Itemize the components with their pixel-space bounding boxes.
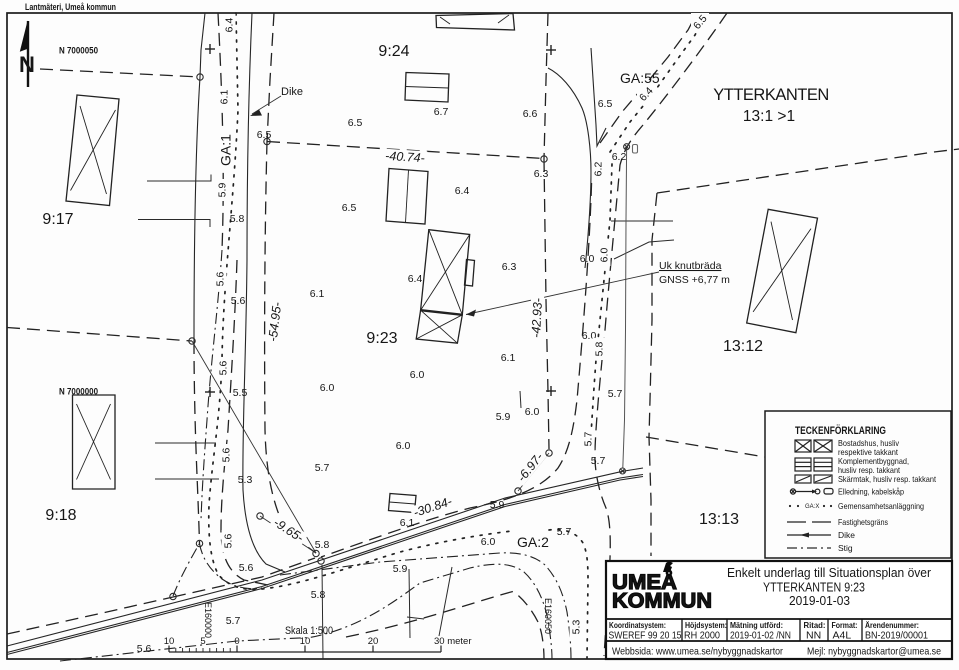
svg-text:5.7: 5.7 (608, 388, 623, 400)
svg-text:9:17: 9:17 (42, 211, 73, 228)
svg-text:6.5: 6.5 (348, 117, 363, 129)
svg-text:E160050: E160050 (543, 598, 553, 634)
svg-text:5.6: 5.6 (231, 295, 246, 307)
svg-text:6.0: 6.0 (410, 369, 425, 381)
svg-text:5.6: 5.6 (215, 272, 227, 287)
svg-text:6.4: 6.4 (455, 185, 470, 197)
svg-text:20: 20 (368, 636, 379, 647)
svg-text:5.8: 5.8 (594, 342, 606, 357)
svg-text:Webbsida: www.umea.se/nybyggna: Webbsida: www.umea.se/nybyggnadskartor (612, 646, 783, 658)
svg-text:Fastighetsgräns: Fastighetsgräns (838, 517, 888, 527)
svg-text:5.7: 5.7 (315, 462, 330, 474)
svg-text:6.4: 6.4 (408, 273, 423, 285)
svg-text:KOMMUN: KOMMUN (612, 589, 712, 613)
svg-text:Uk knutbräda: Uk knutbräda (659, 260, 722, 272)
svg-text:2019-01-02 /NN: 2019-01-02 /NN (730, 630, 791, 642)
svg-text:5.8: 5.8 (311, 589, 326, 601)
svg-text:5.7: 5.7 (226, 615, 241, 627)
svg-text:Stig: Stig (838, 543, 853, 553)
svg-text:Mejl: nybyggnadskartor@umea.se: Mejl: nybyggnadskartor@umea.se (807, 646, 941, 658)
svg-text:10: 10 (300, 636, 311, 647)
svg-text:Skärmtak, husliv resp. takkant: Skärmtak, husliv resp. takkant (838, 474, 937, 484)
svg-text:Enkelt underlag till Situation: Enkelt underlag till Situationsplan över (727, 565, 932, 580)
svg-text:13:1 >1: 13:1 >1 (743, 108, 795, 125)
svg-text:5: 5 (200, 636, 205, 647)
svg-text:6.0: 6.0 (396, 440, 411, 452)
svg-text:5.6: 5.6 (239, 562, 254, 574)
svg-text:N 7000050: N 7000050 (59, 46, 98, 56)
svg-text:6.0: 6.0 (481, 536, 496, 548)
svg-text:6.0: 6.0 (580, 253, 595, 265)
svg-text:10: 10 (164, 636, 175, 647)
svg-text:5.6: 5.6 (137, 643, 152, 655)
svg-text:Lantmäteri, Umeå kommun: Lantmäteri, Umeå kommun (25, 2, 116, 12)
svg-text:6.1: 6.1 (400, 517, 415, 529)
svg-text:6.1: 6.1 (501, 352, 516, 364)
svg-text:6.0: 6.0 (525, 406, 540, 418)
svg-text:6.5: 6.5 (342, 202, 357, 214)
svg-text:9:23: 9:23 (366, 330, 397, 347)
svg-text:5.8: 5.8 (315, 539, 330, 551)
svg-text:6.7: 6.7 (434, 106, 449, 118)
svg-text:5.9: 5.9 (393, 563, 408, 575)
svg-text:5.6: 5.6 (218, 361, 230, 376)
svg-text:TECKENFÖRKLARING: TECKENFÖRKLARING (795, 424, 886, 437)
svg-text:6.0: 6.0 (320, 382, 335, 394)
svg-text:Dike: Dike (281, 86, 303, 98)
svg-text:E160000: E160000 (203, 602, 213, 638)
svg-text:-42.93-: -42.93- (529, 298, 545, 338)
svg-text:NN: NN (806, 630, 821, 642)
svg-text:5.7: 5.7 (591, 455, 606, 467)
svg-text:6.5: 6.5 (598, 98, 613, 110)
svg-text:5.8: 5.8 (230, 213, 245, 225)
svg-text:6.1: 6.1 (219, 90, 231, 105)
svg-text:YTTERKANTEN: YTTERKANTEN (713, 86, 829, 104)
svg-text:5.9: 5.9 (490, 499, 505, 511)
svg-text:BN-2019/00001: BN-2019/00001 (865, 630, 928, 642)
svg-text:6.0: 6.0 (599, 248, 611, 263)
svg-text:13:13: 13:13 (699, 511, 739, 528)
svg-text:RH 2000: RH 2000 (684, 630, 720, 642)
svg-text:6.6: 6.6 (523, 108, 538, 120)
svg-text:5.3: 5.3 (571, 620, 583, 635)
svg-text:GA:55: GA:55 (620, 70, 660, 86)
svg-text:5.3: 5.3 (238, 474, 253, 486)
svg-text:5.9: 5.9 (496, 411, 511, 423)
svg-text:5.7: 5.7 (557, 526, 572, 538)
svg-text:5.9: 5.9 (217, 183, 229, 198)
svg-text:Gemensamhetsanläggning: Gemensamhetsanläggning (838, 501, 924, 511)
svg-text:GNSS +6,77 m: GNSS +6,77 m (659, 274, 730, 286)
svg-text:0: 0 (234, 636, 239, 647)
svg-text:Skala 1:500: Skala 1:500 (285, 625, 333, 637)
svg-text:30 meter: 30 meter (434, 636, 472, 647)
svg-text:9:18: 9:18 (45, 507, 76, 524)
svg-text:5.5: 5.5 (233, 387, 248, 399)
svg-text:6.4: 6.4 (224, 18, 236, 33)
svg-text:9:24: 9:24 (378, 43, 409, 60)
svg-text:Dike: Dike (838, 530, 855, 540)
svg-text:A4L: A4L (833, 630, 852, 642)
svg-text:6.5: 6.5 (257, 129, 272, 141)
svg-text:GA:2: GA:2 (517, 534, 549, 550)
svg-text:6.2: 6.2 (593, 162, 605, 177)
svg-text:GA:1: GA:1 (218, 134, 234, 166)
svg-text:Elledning, kabelskåp: Elledning, kabelskåp (838, 487, 904, 497)
svg-text:5.6: 5.6 (223, 534, 235, 549)
svg-text:-40.74-: -40.74- (385, 149, 425, 165)
svg-text:5.7: 5.7 (583, 432, 595, 447)
svg-text:GA:X: GA:X (805, 504, 819, 510)
svg-text:N: N (19, 52, 35, 77)
svg-text:2019-01-03: 2019-01-03 (789, 593, 850, 608)
svg-text:5.6: 5.6 (221, 448, 233, 463)
svg-text:6.1: 6.1 (310, 288, 325, 300)
svg-text:6.3: 6.3 (534, 168, 549, 180)
svg-text:6.2: 6.2 (612, 151, 627, 163)
svg-text:SWEREF 99 20 15: SWEREF 99 20 15 (609, 630, 682, 642)
svg-text:13:12: 13:12 (723, 338, 763, 355)
svg-text:6.3: 6.3 (502, 261, 517, 273)
